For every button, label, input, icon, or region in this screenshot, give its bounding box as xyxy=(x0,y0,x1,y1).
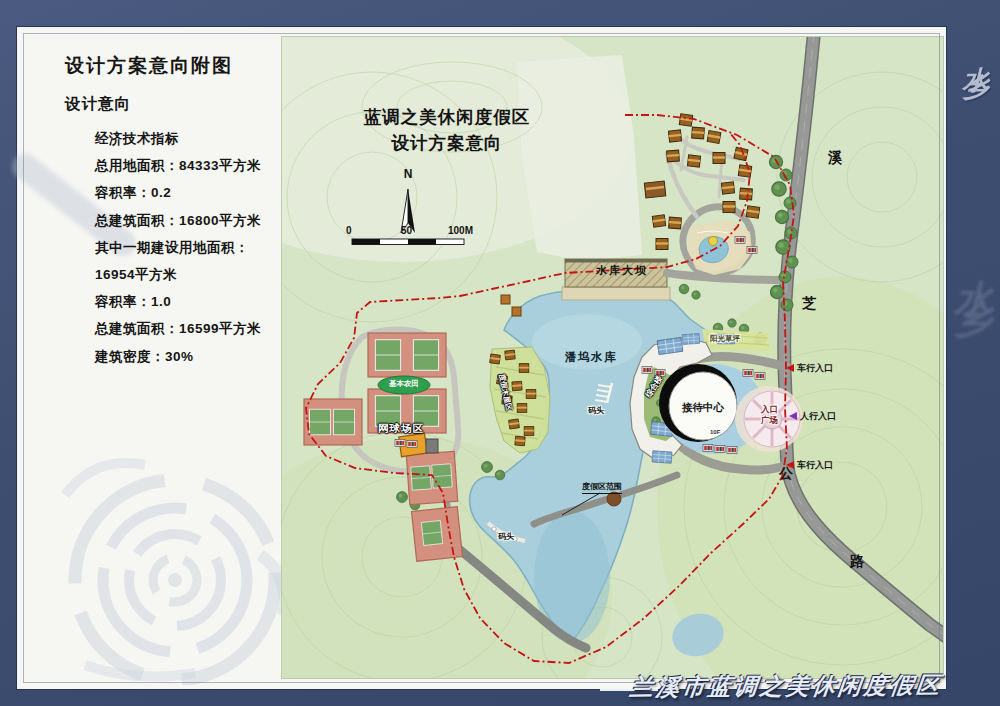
pedestrian-entrance-arrow-icon xyxy=(789,412,797,420)
site-plan-map: 蓝调之美休闲度假区 设计方案意向 N 0 50 100M 水库大坝 潘坞水库 码… xyxy=(281,36,944,679)
reception-center-label: 接待中心 xyxy=(673,401,733,415)
scale-bar xyxy=(352,239,464,245)
page-title: 设计方案意向附图 xyxy=(65,53,295,79)
indicator-row: 经济技术指标 xyxy=(95,125,295,152)
right-strip-watermark: 水乡 xyxy=(959,46,994,58)
plan-sheet-page: { "left_panel": { "title": "设计方案意向附图", "… xyxy=(0,0,1000,706)
farmland-label: 基本农田 xyxy=(378,379,430,389)
indicator-panel: 设计方案意向附图 设计意向 经济技术指标 总用地面积：84333平方米 容积率：… xyxy=(65,53,295,370)
scale-zero-label: 0 xyxy=(346,225,352,236)
vehicle-entrance-arrow-icon xyxy=(786,364,794,372)
road-name-char: 溪 xyxy=(828,149,842,167)
indicator-row: 总建筑面积：16800平方米 xyxy=(95,207,295,234)
plan-sheet: 设计方案意向附图 设计意向 经济技术指标 总用地面积：84333平方米 容积率：… xyxy=(16,26,947,690)
indicator-row: 其中一期建设用地面积： xyxy=(95,234,295,261)
indicator-row: 容积率：0.2 xyxy=(95,179,295,206)
indicator-row: 16954平方米 xyxy=(95,261,295,288)
scale-hundred-label: 100M xyxy=(448,225,473,236)
dam-label: 水库大坝 xyxy=(585,263,659,278)
dock-label: 码头 xyxy=(588,405,604,416)
footer-calligraphy-title: 兰溪市蓝调之美休闲度假区 xyxy=(628,670,944,706)
map-title-line2: 设计方案意向 xyxy=(322,131,572,155)
indicator-row: 建筑密度：30% xyxy=(95,343,295,370)
north-label: N xyxy=(400,167,416,181)
indicator-list: 经济技术指标 总用地面积：84333平方米 容积率：0.2 总建筑面积：1680… xyxy=(95,125,295,370)
lawn-label: 阳光草坪 xyxy=(710,334,740,344)
indicator-row: 总用地面积：84333平方米 xyxy=(95,152,295,179)
cloud-pattern-watermark xyxy=(25,435,305,685)
map-title-line1: 蓝调之美休闲度假区 xyxy=(322,105,572,129)
section-subtitle: 设计意向 xyxy=(65,94,295,115)
tennis-area-label: 网球场区 xyxy=(366,422,436,436)
road-name-char: 芝 xyxy=(802,295,816,313)
vehicle-entrance-label: 车行入口 xyxy=(797,459,833,472)
indicator-row: 总建筑面积：16599平方米 xyxy=(95,315,295,342)
vehicle-entrance-label: 车行入口 xyxy=(797,362,833,375)
reservoir-label: 潘坞水库 xyxy=(565,350,617,365)
pedestrian-entrance-label: 人行入口 xyxy=(800,410,836,423)
scale-fifty-label: 50 xyxy=(401,225,412,236)
resort-boundary-label: 度假区范围 xyxy=(582,481,622,494)
entrance-plaza-label: 广场 xyxy=(761,415,778,427)
road-name-char: 公 xyxy=(779,465,793,483)
right-strip-watermark-faint: 水乡 xyxy=(947,250,998,286)
floors-label: 10F xyxy=(710,429,720,435)
dock-label: 码头 xyxy=(498,531,514,542)
road-name-char: 路 xyxy=(850,553,864,571)
indicator-row: 容积率：1.0 xyxy=(95,288,295,315)
